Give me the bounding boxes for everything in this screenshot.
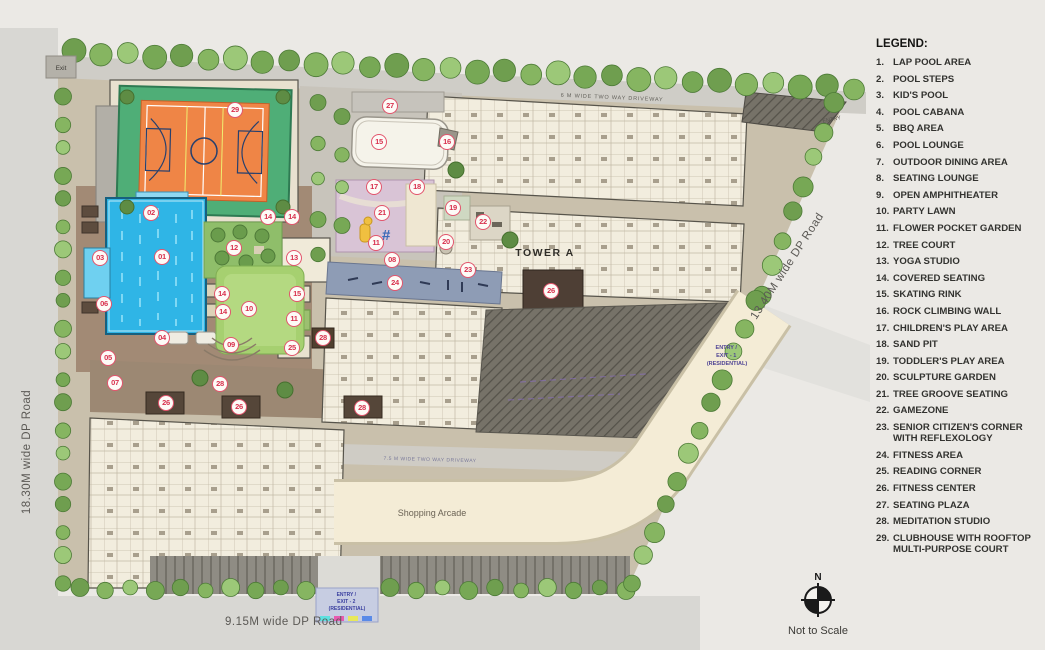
plan-marker: 22 [475, 214, 491, 230]
plan-marker: 12 [226, 240, 242, 256]
legend-item: 19.TODDLER'S PLAY AREA [876, 356, 1042, 367]
legend-item: 15.SKATING RINK [876, 289, 1042, 300]
plan-marker: 18 [409, 179, 425, 195]
legend-item: 12.TREE COURT [876, 240, 1042, 251]
plan-marker: 14 [215, 304, 231, 320]
legend-item: 9.OPEN AMPHITHEATER [876, 190, 1042, 201]
plan-marker: 26 [543, 283, 559, 299]
plan-marker: 14 [260, 209, 276, 225]
legend-panel: LEGEND: 1.LAP POOL AREA2.POOL STEPS3.KID… [876, 38, 1042, 561]
legend-item: 2.POOL STEPS [876, 74, 1042, 85]
legend-item: 6.POOL LOUNGE [876, 140, 1042, 151]
legend-item: 8.SEATING LOUNGE [876, 173, 1042, 184]
plan-marker: 26 [158, 395, 174, 411]
legend-item: 29.CLUBHOUSE WITH ROOFTOP MULTI-PURPOSE … [876, 533, 1042, 555]
legend-item: 10.PARTY LAWN [876, 206, 1042, 217]
legend-item: 28.MEDITATION STUDIO [876, 516, 1042, 527]
plan-marker: 15 [289, 286, 305, 302]
legend-item: 21.TREE GROOVE SEATING [876, 389, 1042, 400]
legend-item: 26.FITNESS CENTER [876, 483, 1042, 494]
site-plan-page: # [0, 0, 1045, 650]
legend-item: 23.SENIOR CITIZEN'S CORNER WITH REFLEXOL… [876, 422, 1042, 444]
plan-marker: 13 [286, 250, 302, 266]
legend-item: 13.YOGA STUDIO [876, 256, 1042, 267]
plan-marker: 09 [223, 337, 239, 353]
plan-marker: 11 [368, 235, 384, 251]
legend-item: 5.BBQ AREA [876, 123, 1042, 134]
plan-marker: 03 [92, 250, 108, 266]
legend-item: 7.OUTDOOR DINING AREA [876, 157, 1042, 168]
marker-layer: 2927151602141417181921221201031311200823… [0, 0, 870, 650]
legend-item: 17.CHILDREN'S PLAY AREA [876, 323, 1042, 334]
plan-marker: 02 [143, 205, 159, 221]
legend-item: 11.FLOWER POCKET GARDEN [876, 223, 1042, 234]
legend-item: 14.COVERED SEATING [876, 273, 1042, 284]
legend-item: 3.KID'S POOL [876, 90, 1042, 101]
legend-item: 27.SEATING PLAZA [876, 500, 1042, 511]
plan-marker: 28 [212, 376, 228, 392]
plan-marker: 28 [354, 400, 370, 416]
plan-marker: 28 [315, 330, 331, 346]
plan-marker: 05 [100, 350, 116, 366]
plan-marker: 15 [371, 134, 387, 150]
plan-marker: 10 [241, 301, 257, 317]
legend-item: 24.FITNESS AREA [876, 450, 1042, 461]
plan-marker: 20 [438, 234, 454, 250]
legend-item: 22.GAMEZONE [876, 405, 1042, 416]
plan-marker: 26 [231, 399, 247, 415]
plan-marker: 06 [96, 296, 112, 312]
legend-item: 25.READING CORNER [876, 466, 1042, 477]
plan-marker: 14 [284, 209, 300, 225]
plan-marker: 08 [384, 252, 400, 268]
plan-marker: 01 [154, 249, 170, 265]
legend-item: 1.LAP POOL AREA [876, 57, 1042, 68]
plan-marker: 17 [366, 179, 382, 195]
legend-list: 1.LAP POOL AREA2.POOL STEPS3.KID'S POOL4… [876, 57, 1042, 555]
plan-marker: 11 [286, 311, 302, 327]
legend-item: 18.SAND PIT [876, 339, 1042, 350]
plan-marker: 16 [439, 134, 455, 150]
legend-item: 16.ROCK CLIMBING WALL [876, 306, 1042, 317]
legend-item: 4.POOL CABANA [876, 107, 1042, 118]
plan-marker: 07 [107, 375, 123, 391]
plan-marker: 24 [387, 275, 403, 291]
plan-marker: 23 [460, 262, 476, 278]
plan-marker: 27 [382, 98, 398, 114]
plan-marker: 25 [284, 340, 300, 356]
plan-marker: 29 [227, 102, 243, 118]
legend-title: LEGEND: [876, 38, 1042, 50]
plan-marker: 14 [214, 286, 230, 302]
plan-marker: 19 [445, 200, 461, 216]
plan-marker: 04 [154, 330, 170, 346]
legend-item: 20.SCULPTURE GARDEN [876, 372, 1042, 383]
plan-marker: 21 [374, 205, 390, 221]
